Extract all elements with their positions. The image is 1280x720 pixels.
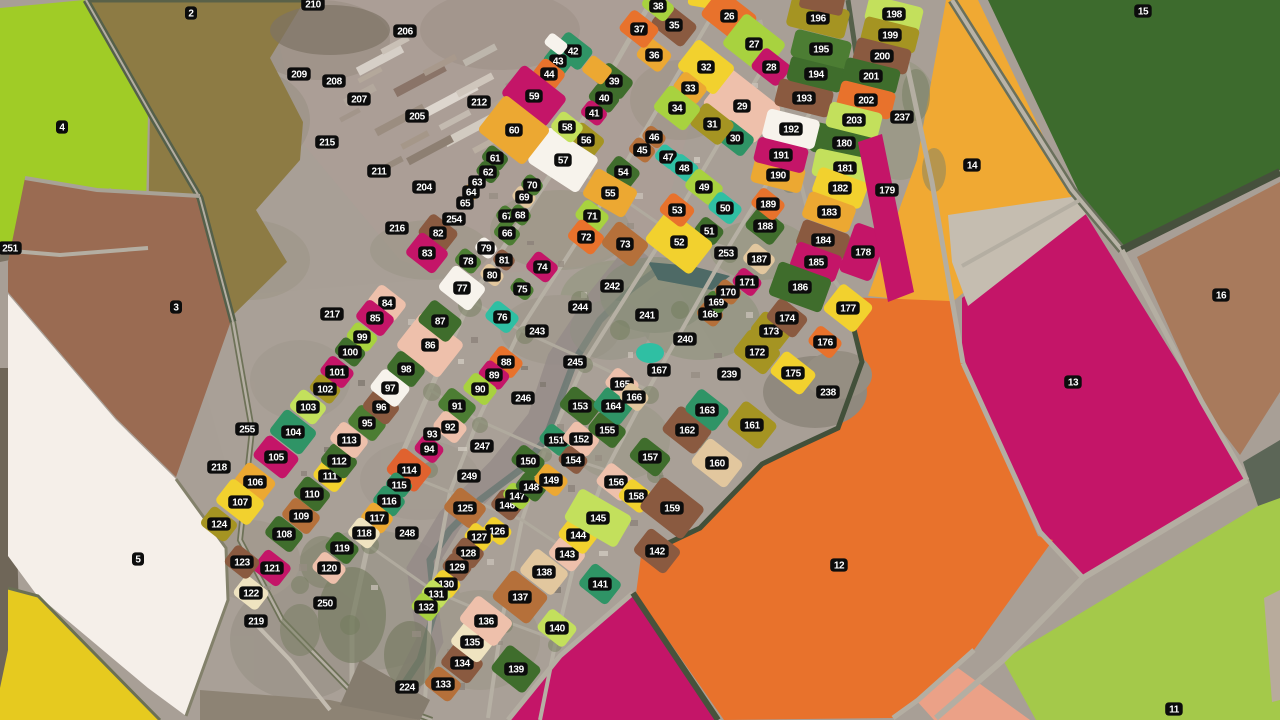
svg-text:69: 69: [519, 193, 530, 204]
svg-text:118: 118: [357, 529, 373, 540]
svg-text:81: 81: [499, 256, 510, 267]
svg-text:133: 133: [435, 680, 451, 691]
svg-text:209: 209: [291, 70, 307, 81]
svg-text:145: 145: [590, 514, 606, 525]
svg-text:115: 115: [392, 481, 408, 492]
svg-text:183: 183: [821, 208, 837, 219]
svg-text:155: 155: [599, 426, 615, 437]
svg-text:12: 12: [834, 561, 845, 572]
svg-text:100: 100: [342, 348, 358, 359]
svg-text:203: 203: [846, 116, 862, 127]
svg-text:182: 182: [832, 184, 848, 195]
svg-text:106: 106: [247, 478, 263, 489]
svg-text:29: 29: [737, 102, 748, 113]
svg-text:139: 139: [508, 665, 524, 676]
svg-text:136: 136: [478, 617, 494, 628]
svg-text:105: 105: [268, 453, 284, 464]
svg-text:201: 201: [863, 72, 879, 83]
svg-text:124: 124: [211, 520, 227, 531]
svg-text:41: 41: [589, 109, 600, 120]
svg-text:5: 5: [135, 555, 141, 566]
svg-text:85: 85: [370, 314, 381, 325]
svg-text:177: 177: [840, 304, 856, 315]
svg-text:40: 40: [599, 94, 610, 105]
svg-text:247: 247: [474, 442, 490, 453]
svg-text:129: 129: [449, 563, 465, 574]
svg-text:48: 48: [679, 164, 690, 175]
svg-text:42: 42: [568, 47, 579, 58]
svg-text:75: 75: [517, 285, 528, 296]
svg-text:188: 188: [757, 222, 773, 233]
svg-text:91: 91: [452, 402, 463, 413]
svg-text:33: 33: [685, 84, 696, 95]
svg-text:217: 217: [324, 310, 340, 321]
svg-text:219: 219: [248, 617, 264, 628]
svg-text:31: 31: [707, 120, 718, 131]
svg-text:200: 200: [874, 52, 890, 63]
svg-text:167: 167: [651, 366, 667, 377]
svg-text:151: 151: [548, 436, 564, 447]
svg-text:202: 202: [858, 96, 874, 107]
svg-text:92: 92: [445, 423, 456, 434]
svg-text:142: 142: [649, 547, 665, 558]
svg-text:178: 178: [855, 248, 871, 259]
svg-text:112: 112: [332, 457, 348, 468]
svg-text:27: 27: [749, 40, 760, 51]
svg-text:80: 80: [487, 271, 498, 282]
svg-text:78: 78: [463, 257, 474, 268]
svg-text:61: 61: [490, 154, 501, 165]
svg-text:253: 253: [718, 249, 734, 260]
svg-text:36: 36: [649, 51, 660, 62]
svg-text:120: 120: [321, 564, 337, 575]
svg-text:218: 218: [211, 463, 227, 474]
svg-text:143: 143: [559, 550, 575, 561]
svg-text:249: 249: [461, 472, 477, 483]
svg-text:204: 204: [416, 183, 432, 194]
svg-text:164: 164: [605, 402, 621, 413]
svg-text:166: 166: [626, 393, 642, 404]
svg-text:212: 212: [471, 98, 487, 109]
svg-text:179: 179: [879, 186, 895, 197]
svg-text:255: 255: [239, 425, 255, 436]
svg-text:3: 3: [173, 303, 179, 314]
svg-text:239: 239: [721, 370, 737, 381]
svg-text:2: 2: [188, 9, 194, 20]
svg-text:132: 132: [418, 603, 434, 614]
svg-text:82: 82: [433, 229, 444, 240]
svg-text:254: 254: [446, 215, 462, 226]
svg-text:163: 163: [699, 406, 715, 417]
svg-text:26: 26: [724, 12, 735, 23]
svg-text:128: 128: [460, 549, 476, 560]
svg-text:55: 55: [605, 189, 616, 200]
svg-text:65: 65: [460, 199, 471, 210]
svg-text:161: 161: [744, 421, 760, 432]
svg-text:107: 107: [232, 498, 248, 509]
svg-text:140: 140: [549, 624, 565, 635]
svg-text:53: 53: [672, 206, 683, 217]
svg-text:101: 101: [329, 368, 345, 379]
svg-text:198: 198: [886, 10, 902, 21]
svg-text:88: 88: [501, 358, 512, 369]
svg-text:187: 187: [751, 255, 767, 266]
svg-text:116: 116: [382, 497, 398, 508]
svg-text:211: 211: [372, 167, 388, 178]
svg-text:108: 108: [276, 530, 292, 541]
svg-text:84: 84: [382, 299, 393, 310]
svg-text:125: 125: [457, 504, 473, 515]
svg-text:184: 184: [815, 236, 831, 247]
svg-text:192: 192: [783, 125, 799, 136]
svg-text:169: 169: [708, 298, 724, 309]
svg-text:196: 196: [810, 14, 826, 25]
svg-text:60: 60: [509, 126, 520, 137]
svg-text:180: 180: [836, 139, 852, 150]
svg-text:90: 90: [475, 385, 486, 396]
svg-text:37: 37: [634, 25, 645, 36]
svg-text:73: 73: [620, 240, 631, 251]
svg-text:199: 199: [882, 31, 898, 42]
svg-text:104: 104: [285, 428, 301, 439]
svg-text:137: 137: [512, 593, 528, 604]
svg-text:51: 51: [704, 227, 715, 238]
svg-text:250: 250: [317, 599, 333, 610]
svg-text:50: 50: [720, 204, 731, 215]
svg-text:238: 238: [820, 388, 836, 399]
svg-text:138: 138: [536, 568, 552, 579]
svg-text:16: 16: [1216, 291, 1227, 302]
svg-text:35: 35: [669, 21, 680, 32]
svg-text:210: 210: [305, 0, 321, 11]
svg-text:117: 117: [370, 514, 386, 525]
svg-text:186: 186: [792, 283, 808, 294]
svg-text:89: 89: [489, 371, 500, 382]
svg-text:59: 59: [529, 92, 540, 103]
svg-text:30: 30: [730, 134, 741, 145]
svg-text:4: 4: [59, 123, 65, 134]
svg-text:87: 87: [435, 317, 446, 328]
svg-text:134: 134: [454, 659, 470, 670]
svg-text:242: 242: [604, 282, 620, 293]
svg-text:237: 237: [894, 113, 910, 124]
svg-text:173: 173: [763, 327, 779, 338]
svg-text:96: 96: [376, 403, 387, 414]
svg-text:66: 66: [502, 229, 513, 240]
svg-text:122: 122: [243, 589, 259, 600]
svg-text:72: 72: [581, 233, 592, 244]
svg-text:97: 97: [385, 384, 396, 395]
svg-text:157: 157: [642, 453, 658, 464]
svg-text:240: 240: [677, 335, 693, 346]
svg-text:13: 13: [1068, 378, 1079, 389]
svg-text:194: 194: [808, 70, 824, 81]
svg-text:93: 93: [427, 430, 438, 441]
svg-text:171: 171: [739, 278, 755, 289]
svg-text:99: 99: [357, 333, 368, 344]
svg-text:244: 244: [572, 303, 588, 314]
svg-text:176: 176: [817, 338, 833, 349]
svg-text:46: 46: [649, 133, 660, 144]
svg-text:14: 14: [967, 161, 978, 172]
svg-text:32: 32: [701, 63, 712, 74]
svg-text:207: 207: [351, 95, 367, 106]
svg-text:76: 76: [497, 313, 508, 324]
svg-text:86: 86: [425, 341, 436, 352]
svg-text:162: 162: [679, 426, 695, 437]
svg-text:57: 57: [558, 156, 569, 167]
svg-text:158: 158: [628, 492, 644, 503]
svg-text:39: 39: [609, 77, 620, 88]
svg-text:159: 159: [664, 504, 680, 515]
svg-text:114: 114: [402, 466, 418, 477]
svg-text:148: 148: [523, 483, 539, 494]
svg-text:98: 98: [401, 365, 412, 376]
svg-text:119: 119: [335, 544, 351, 555]
svg-text:63: 63: [472, 178, 483, 189]
svg-text:44: 44: [544, 70, 555, 81]
svg-text:152: 152: [573, 435, 589, 446]
svg-text:172: 172: [749, 348, 765, 359]
svg-text:154: 154: [565, 456, 581, 467]
svg-text:193: 193: [796, 94, 812, 105]
svg-text:49: 49: [699, 183, 710, 194]
svg-text:103: 103: [300, 403, 316, 414]
svg-text:185: 185: [808, 258, 824, 269]
svg-text:243: 243: [529, 327, 545, 338]
svg-text:241: 241: [639, 311, 655, 322]
svg-text:216: 216: [389, 224, 405, 235]
svg-text:160: 160: [709, 459, 725, 470]
svg-text:215: 215: [319, 138, 335, 149]
svg-text:156: 156: [608, 478, 624, 489]
svg-text:15: 15: [1138, 7, 1149, 18]
svg-text:245: 245: [567, 358, 583, 369]
svg-text:174: 174: [779, 314, 795, 325]
svg-text:248: 248: [399, 529, 415, 540]
svg-text:123: 123: [234, 558, 250, 569]
svg-text:71: 71: [587, 212, 598, 223]
svg-text:150: 150: [520, 457, 536, 468]
svg-text:141: 141: [592, 580, 608, 591]
svg-text:34: 34: [672, 104, 683, 115]
svg-text:56: 56: [581, 136, 592, 147]
svg-text:127: 127: [471, 533, 487, 544]
svg-text:102: 102: [317, 385, 333, 396]
svg-text:135: 135: [464, 638, 480, 649]
svg-text:83: 83: [422, 249, 433, 260]
svg-text:38: 38: [653, 2, 664, 13]
svg-text:251: 251: [2, 244, 18, 255]
svg-text:121: 121: [264, 564, 280, 575]
svg-text:224: 224: [399, 683, 415, 694]
svg-text:205: 205: [409, 112, 425, 123]
svg-text:191: 191: [773, 151, 789, 162]
svg-text:195: 195: [813, 45, 829, 56]
svg-text:52: 52: [674, 238, 685, 249]
svg-text:206: 206: [397, 27, 413, 38]
svg-text:175: 175: [785, 369, 801, 380]
svg-text:170: 170: [720, 288, 736, 299]
svg-text:149: 149: [543, 476, 559, 487]
svg-text:208: 208: [326, 77, 342, 88]
svg-text:77: 77: [457, 284, 468, 295]
svg-text:54: 54: [618, 168, 629, 179]
svg-text:113: 113: [342, 436, 358, 447]
svg-text:74: 74: [537, 263, 548, 274]
svg-text:190: 190: [770, 171, 786, 182]
svg-text:109: 109: [293, 512, 309, 523]
svg-text:94: 94: [424, 445, 435, 456]
svg-text:246: 246: [515, 394, 531, 405]
svg-text:68: 68: [515, 211, 526, 222]
svg-text:58: 58: [562, 123, 573, 134]
svg-text:153: 153: [572, 402, 588, 413]
svg-text:70: 70: [527, 181, 538, 192]
svg-text:110: 110: [305, 490, 321, 501]
svg-text:79: 79: [481, 244, 492, 255]
svg-text:189: 189: [760, 200, 776, 211]
svg-text:28: 28: [766, 63, 777, 74]
svg-text:95: 95: [362, 419, 373, 430]
svg-text:11: 11: [1169, 705, 1180, 716]
svg-text:144: 144: [570, 531, 586, 542]
svg-text:45: 45: [637, 146, 648, 157]
